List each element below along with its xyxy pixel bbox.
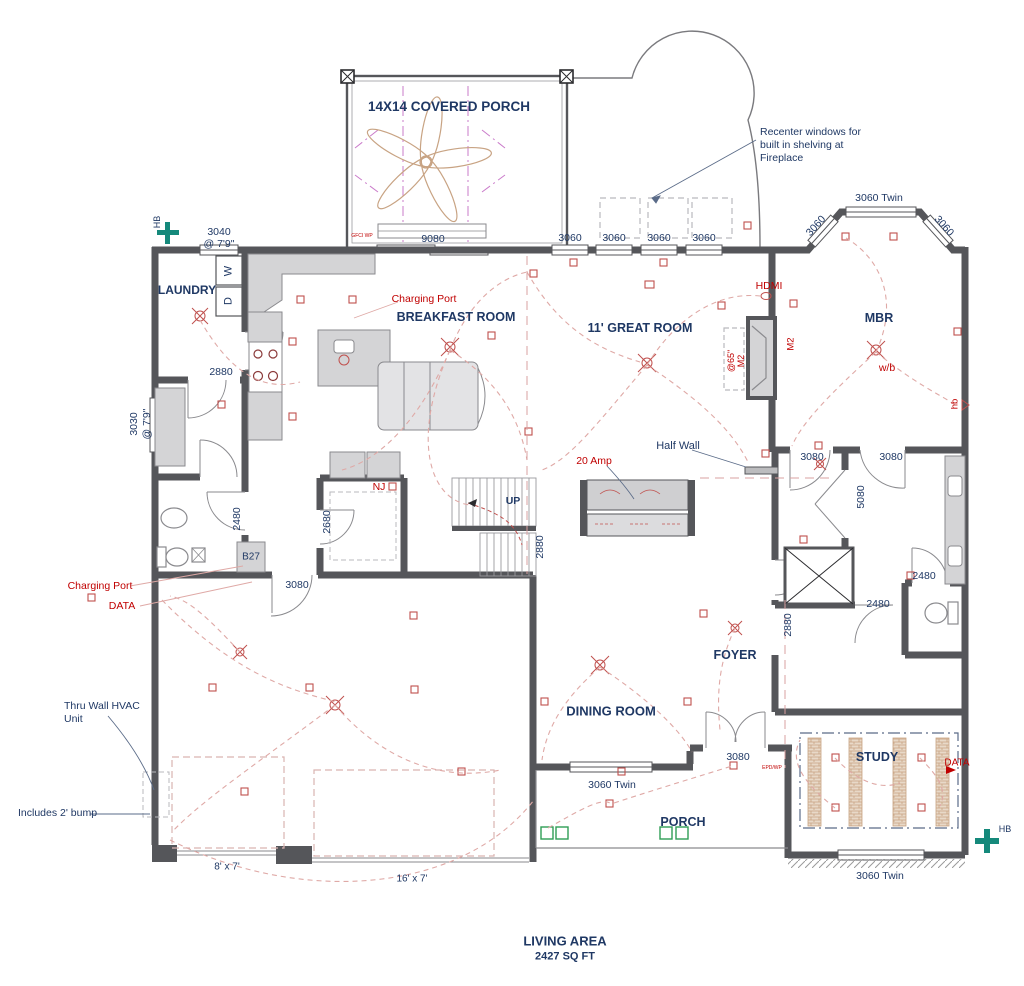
window-dim-3030: 3030 bbox=[128, 412, 140, 435]
washer-label: W bbox=[223, 266, 236, 276]
living-area-title: LIVING AREA bbox=[523, 935, 606, 950]
room-porch: PORCH bbox=[660, 815, 705, 829]
window-dim-3060-4: 3060 bbox=[692, 232, 715, 244]
half-bath-fixtures bbox=[157, 508, 205, 567]
door-dim-2480-hall: 2480 bbox=[866, 598, 889, 610]
floor-plan: HB 3040 @ 7'9" LAUNDRY W D 14X14 COVERED… bbox=[0, 0, 1024, 986]
room-laundry: LAUNDRY bbox=[158, 284, 216, 298]
amp20-label: 20 Amp bbox=[576, 455, 612, 467]
ceiling-fixtures bbox=[192, 308, 885, 714]
exterior-walls bbox=[152, 212, 965, 862]
hall-dim-2880: 2880 bbox=[782, 613, 794, 636]
half-wall bbox=[745, 467, 778, 474]
door-dim-5080: 5080 bbox=[855, 485, 867, 508]
window-height-79-left: @ 7'9" bbox=[141, 409, 153, 440]
m2-label-tv: M2 bbox=[736, 355, 746, 368]
kitchen-cabinets bbox=[155, 254, 400, 572]
wb-label: w/b bbox=[879, 362, 895, 374]
room-breakfast: BREAKFAST ROOM bbox=[397, 310, 516, 324]
range bbox=[249, 342, 282, 392]
window-dim-3060-1: 3060 bbox=[558, 232, 581, 244]
room-covered-porch: 14X14 COVERED PORCH bbox=[368, 99, 530, 115]
garage-door-8x7: 8' x 7' bbox=[214, 862, 240, 873]
media-console bbox=[580, 480, 695, 536]
breakfast-hutch bbox=[378, 362, 485, 430]
door-dim-3080-closet: 3080 bbox=[800, 451, 823, 463]
nj-label: NJ bbox=[373, 481, 386, 493]
door-dim-3080-front: 3080 bbox=[726, 751, 749, 763]
recenter-note: Recenter windows for built in shelving a… bbox=[760, 126, 878, 165]
garage-step-wall bbox=[276, 846, 312, 864]
room-mbr: MBR bbox=[865, 311, 893, 325]
window-dim-3040: 3040 bbox=[207, 226, 230, 238]
door-dim-2880-laundry: 2880 bbox=[209, 366, 232, 378]
porch-slab bbox=[536, 770, 788, 848]
ceiling-fan bbox=[364, 95, 493, 225]
room-great-room: 11' GREAT ROOM bbox=[588, 321, 693, 335]
living-area-sqft: 2427 SQ FT bbox=[535, 951, 595, 964]
door-dim-9080: 9080 bbox=[421, 233, 444, 245]
bump-note: Includes 2' bump bbox=[18, 807, 148, 820]
thru-wall-hvac-note: Thru Wall HVAC Unit bbox=[64, 700, 154, 726]
garage-doors-overhead bbox=[172, 757, 494, 856]
hb-label-bottomright: HB bbox=[999, 824, 1012, 834]
covered-porch-structure bbox=[341, 70, 573, 248]
charging-port-breakfast: Charging Port bbox=[392, 293, 457, 305]
epd-wp-label: EPD/WP bbox=[762, 765, 782, 771]
door-dim-2480-bath: 2480 bbox=[231, 507, 243, 530]
study-ceiling-border bbox=[800, 733, 958, 828]
gfci-wp-label: GFCI WP bbox=[351, 233, 372, 239]
window-dim-3060-2: 3060 bbox=[602, 232, 625, 244]
dryer-label: D bbox=[223, 297, 236, 305]
stair-dim-2880: 2880 bbox=[534, 535, 546, 558]
tv-size-label: @65" bbox=[726, 350, 736, 372]
window-dim-3060twin-dining: 3060 Twin bbox=[588, 779, 636, 791]
room-foyer: FOYER bbox=[713, 648, 756, 662]
window-dim-3060twin-study: 3060 Twin bbox=[856, 870, 904, 882]
doors bbox=[188, 332, 947, 748]
data-label-study: DATA bbox=[944, 758, 969, 769]
hb-label-topleft: HB bbox=[152, 216, 162, 229]
bay-window-3060-twin: 3060 Twin bbox=[855, 192, 903, 204]
fireplace-niche bbox=[724, 293, 775, 399]
garage-door-16x7: 16' x 7' bbox=[396, 874, 427, 885]
stair-up-label: UP bbox=[506, 495, 521, 507]
room-dining: DINING ROOM bbox=[566, 705, 656, 720]
data-label-hall: DATA bbox=[109, 600, 135, 612]
door-dim-2680-pantry: 2680 bbox=[321, 510, 333, 533]
exterior-hatch bbox=[788, 859, 965, 868]
half-wall-label: Half Wall bbox=[656, 440, 700, 452]
stair-rail bbox=[452, 526, 536, 531]
door-dim-2480-toilet: 2480 bbox=[912, 570, 935, 582]
window-height-79: @ 7'9" bbox=[204, 238, 235, 250]
room-study: STUDY bbox=[856, 750, 898, 764]
cabinet-b27-label: B27 bbox=[242, 551, 260, 563]
charging-port-hall: Charging Port bbox=[68, 580, 133, 592]
curved-patio-edge bbox=[568, 31, 760, 247]
door-dim-3080-garage: 3080 bbox=[285, 579, 308, 591]
window-dim-3060-3: 3060 bbox=[647, 232, 670, 244]
hb-small-label: hb bbox=[950, 399, 961, 410]
m2-label-wall: M2 bbox=[786, 337, 797, 350]
door-dim-3080-bath: 3080 bbox=[879, 451, 902, 463]
pantry-shelves bbox=[330, 492, 396, 560]
hdmi-label: HDMI bbox=[756, 280, 783, 292]
